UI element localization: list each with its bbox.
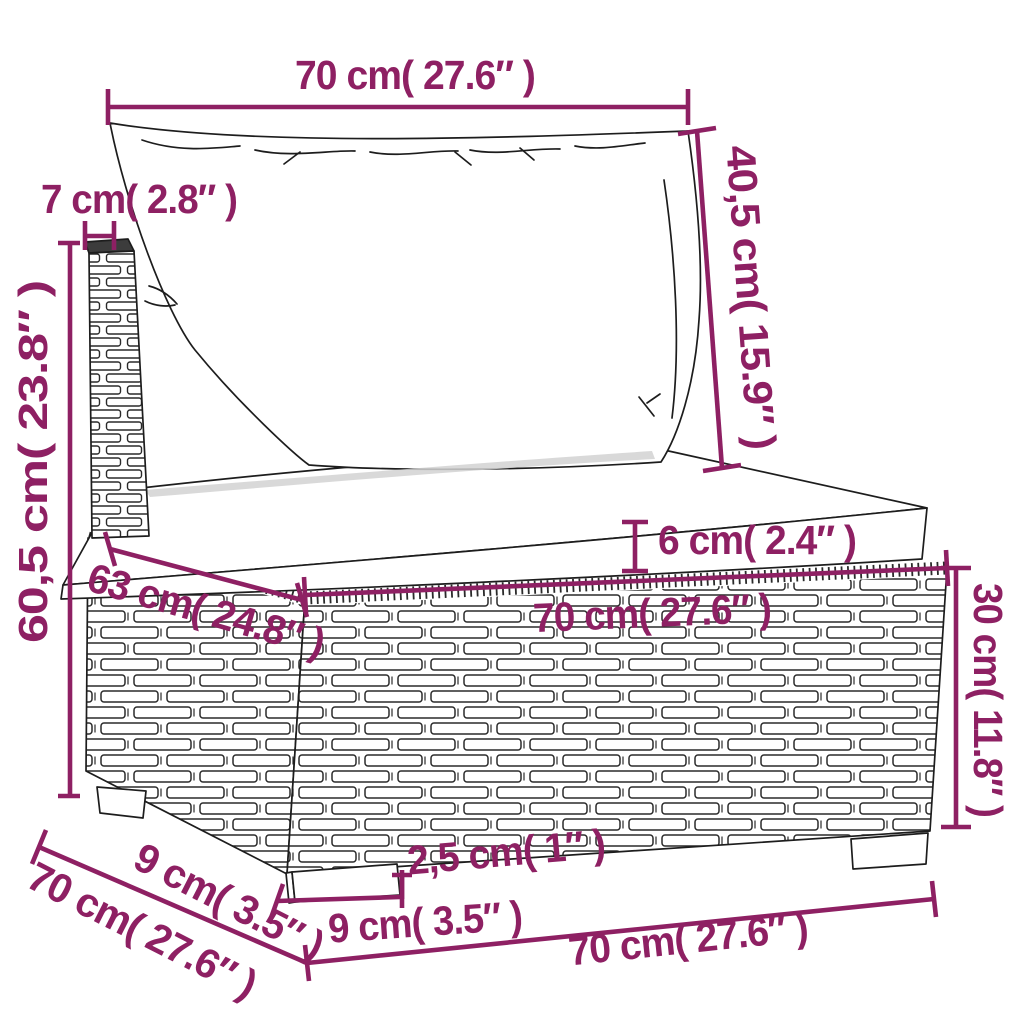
label-base-height: 30 cm( 11.8″ ) bbox=[965, 583, 1011, 817]
label-total-height: 60,5 cm( 23.8″ ) bbox=[10, 281, 56, 643]
label-back-cushion-height: 40,5 cm( 15.9″ ) bbox=[717, 144, 784, 450]
foot-front-right bbox=[851, 833, 928, 869]
backrest-frame-column bbox=[85, 239, 149, 538]
sofa-line-art bbox=[61, 123, 947, 903]
frame-column-front bbox=[89, 251, 149, 538]
label-cushion-thickness: 6 cm( 2.4″ ) bbox=[658, 517, 856, 563]
foot-back-left bbox=[97, 787, 146, 818]
furniture-dimension-diagram: 70 cm( 27.6″ ) 40,5 cm( 15.9″ ) 7 cm( 2.… bbox=[0, 0, 1024, 1024]
backrest-cushion-body bbox=[110, 123, 700, 469]
dim-line-total-height bbox=[58, 243, 80, 796]
label-top-width: 70 cm( 27.6″ ) bbox=[295, 52, 535, 98]
label-back-frame-width: 7 cm( 2.8″ ) bbox=[41, 176, 237, 222]
label-base-front-width: 70 cm( 27.6″ ) bbox=[566, 904, 809, 975]
